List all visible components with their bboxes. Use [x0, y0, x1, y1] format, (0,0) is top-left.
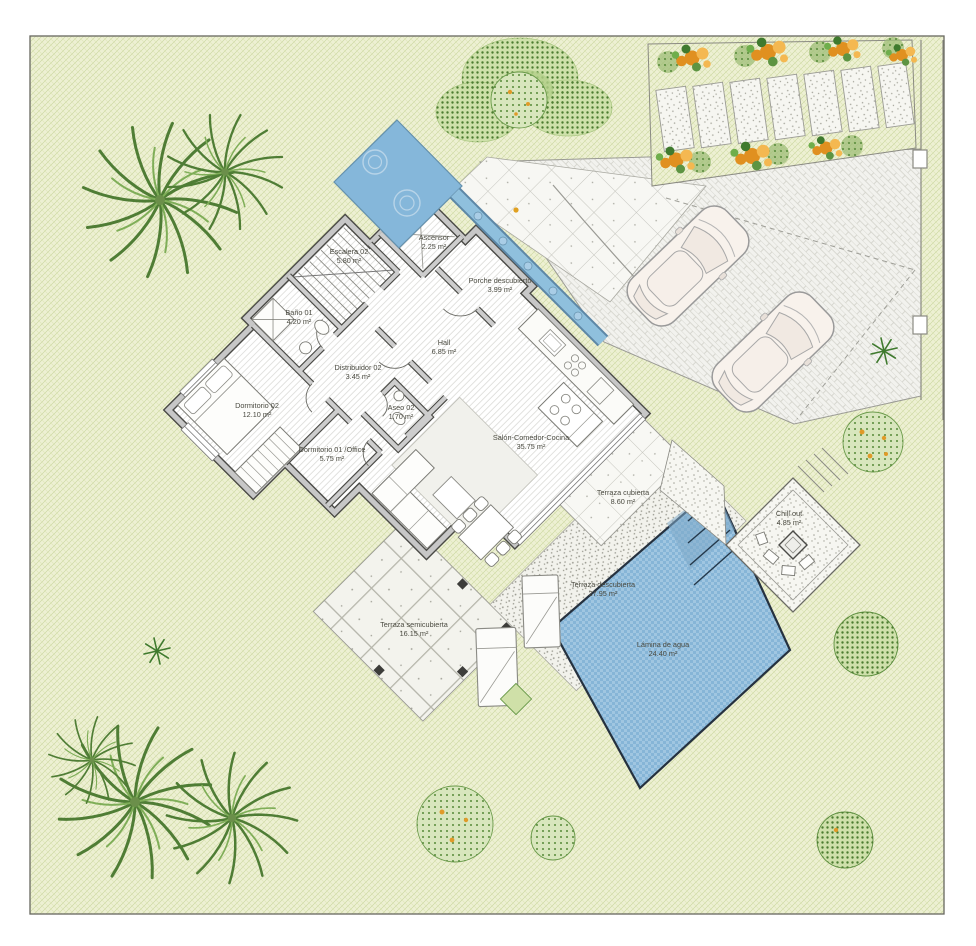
- site-plan-page: Escalera 025.80 m² Ascensor2.25 m² Porch…: [0, 0, 976, 946]
- bush-bottom-center-2: [531, 816, 575, 860]
- room-label-ascensor: Ascensor2.25 m²: [419, 233, 450, 251]
- bush-right-1: [843, 412, 903, 472]
- bush-bottom-center-1: [417, 786, 493, 862]
- bush-right-2: [834, 612, 898, 676]
- room-label-bano-01: Baño 014.20 m²: [285, 308, 312, 326]
- site-plan-drawing: Escalera 025.80 m² Ascensor2.25 m² Porch…: [0, 0, 976, 946]
- bush-bottom-right: [817, 812, 873, 868]
- room-label-aseo-02: Aseo 021.70 m²: [388, 403, 415, 421]
- room-label-chill-out: Chill out4.85 m²: [776, 509, 802, 527]
- bush-top-center: [491, 72, 547, 128]
